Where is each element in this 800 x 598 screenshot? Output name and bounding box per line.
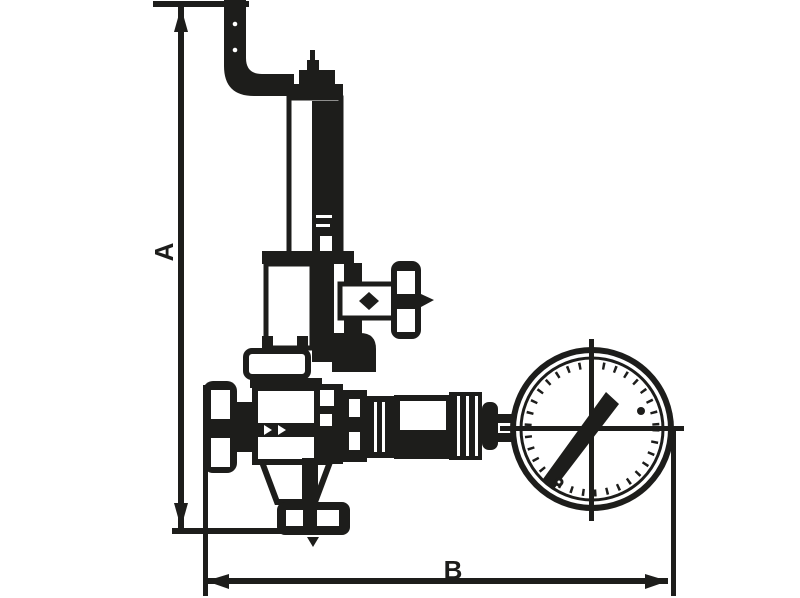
dimension-line-b xyxy=(206,578,668,584)
inlet-handwheel xyxy=(203,381,258,473)
dimension-label-a: A xyxy=(151,235,179,269)
valve-diagram xyxy=(0,0,800,598)
arrowhead-left-icon xyxy=(206,574,229,589)
drain-funnel xyxy=(262,458,330,504)
technical-drawing-canvas: A B xyxy=(0,0,800,598)
cap-and-adjusting-screw xyxy=(291,50,343,98)
centerline-arrow-icon xyxy=(307,537,319,547)
pressure-gauge-dial xyxy=(500,339,684,521)
extension-line-right-b xyxy=(671,429,676,596)
lifting-lever-pipe xyxy=(224,0,294,96)
spring-housing-column xyxy=(289,98,341,254)
dial-screw-icon xyxy=(637,407,645,415)
arrowhead-up-icon xyxy=(174,7,188,32)
valve-body xyxy=(255,384,343,464)
bottom-outlet-flange xyxy=(277,502,350,547)
dimension-label-b: B xyxy=(438,557,468,581)
arrowhead-down-icon xyxy=(174,503,188,528)
arrowhead-right-icon xyxy=(645,574,668,589)
gauge-connection-pipe xyxy=(343,390,515,462)
